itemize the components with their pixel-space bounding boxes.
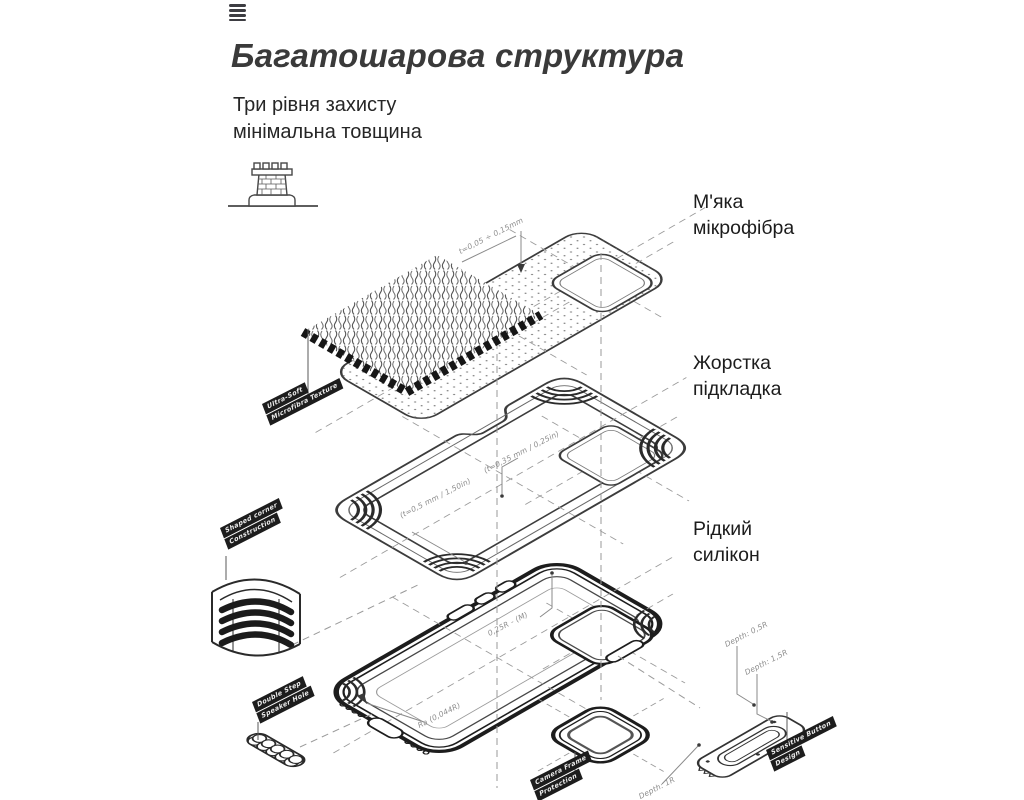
menu-icon [229,4,246,24]
subtitle-line-1: Три рівня захисту [233,92,422,119]
page-title: Багатошарова структура [231,38,684,74]
product-infographic: Багатошарова структура Три рівня захисту… [0,0,1024,800]
corner-bumper-detail [212,579,300,655]
castle-tower-icon [228,163,318,206]
label-liquid-silicone: Рідкий силікон [693,517,760,568]
exploded-case-diagram [0,0,1024,800]
speaker-holes-detail [243,731,309,769]
subtitle: Три рівня захисту мінімальна товщина [233,92,422,146]
subtitle-line-2: мінімальна товщина [233,119,422,146]
label-hard-liner: Жорстка підкладка [693,351,781,402]
label-soft-microfiber: М'яка мікрофібра [693,190,794,241]
